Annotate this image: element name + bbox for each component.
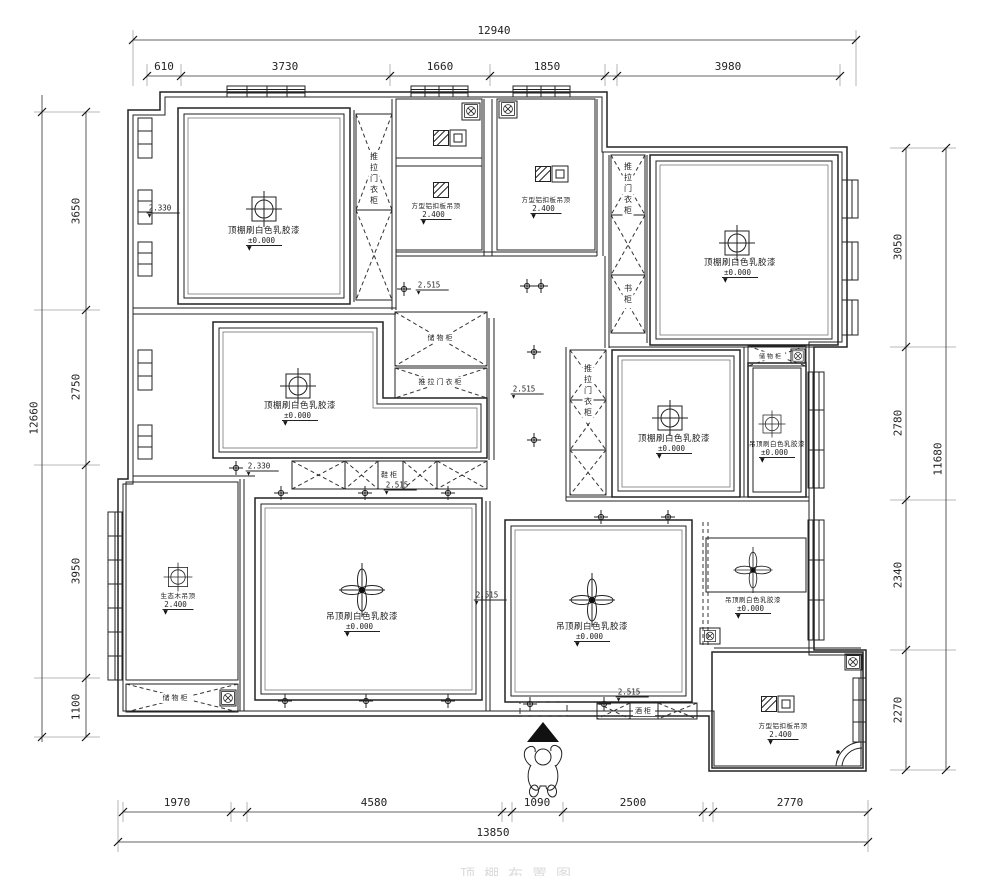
dim-top-seg-2: 1660: [427, 60, 454, 73]
dim-top-total: 12940: [477, 24, 510, 37]
room-hall-right: [700, 538, 806, 644]
wardrobe-label-mid: 推拉门衣柜: [583, 362, 594, 421]
bookcase-label: 书柜: [623, 282, 634, 308]
ceiling-plan-drawing: 12940 610 3730 1660 1850 3980 13850 1970…: [0, 0, 1000, 876]
dimension-lines: [34, 30, 956, 852]
dim-left-seg-0: 3650: [70, 198, 83, 225]
room-bedroom-mid: [612, 350, 740, 497]
window-left-1: [138, 118, 152, 158]
room-label-bedroom-tr: 顶棚刷白色乳胶漆 ±0.000▼: [704, 258, 776, 283]
window-right-1: [842, 180, 858, 218]
room-bedroom-tl: [178, 108, 350, 304]
level-triangle-icon: ▼: [247, 246, 252, 251]
dim-bottom-seg-4: 2770: [777, 796, 804, 809]
window-left-3: [138, 242, 152, 276]
elevation-marker-2: 2.515▼: [416, 281, 449, 296]
room-label-bath-1: 方型铝扣板吊顶 2.400▼: [412, 202, 461, 225]
room-label-bedroom-tl: 顶棚刷白色乳胶漆 ±0.000▼: [228, 226, 300, 251]
wardrobe-label-tr: 推拉门衣柜: [623, 160, 634, 219]
room-bath-2: [497, 99, 595, 250]
dim-left-seg-1: 2750: [70, 374, 83, 401]
dim-right-total: 11680: [932, 442, 945, 475]
window-right-6: [853, 678, 866, 742]
room-label-bath-3: 方型铝扣板吊顶 2.400▼: [759, 722, 808, 745]
storage-cabinet-label-2: 储物柜: [161, 693, 192, 703]
elevation-marker-7: 2.515▼: [616, 688, 649, 703]
window-left-4: [138, 350, 152, 390]
dim-top-seg-1: 3730: [272, 60, 299, 73]
dim-right-seg-3: 2270: [892, 697, 905, 724]
room-label-bath-2: 方型铝扣板吊顶 2.400▼: [522, 196, 571, 219]
window-left-5: [138, 425, 152, 459]
shoe-cabinet-label: 鞋柜: [379, 470, 401, 480]
wardrobe-label-tl: 推拉门衣柜: [369, 150, 380, 209]
elevation-marker-1: 2.330▼: [147, 204, 180, 219]
room-bath-3: [712, 652, 863, 768]
dim-left-seg-3: 1100: [70, 694, 83, 721]
dim-right-seg-0: 3050: [892, 234, 905, 261]
dim-right-seg-1: 2780: [892, 410, 905, 437]
plan-linework: [0, 0, 1000, 876]
entry-arrow-icon: [527, 722, 559, 742]
room-label-narrow-right: 吊顶刷白色乳胶漆 ±0.000▼: [749, 440, 805, 463]
dim-bottom-seg-0: 1970: [164, 796, 191, 809]
storage-cabinet-label-1: 储物柜: [426, 333, 457, 343]
dim-top-seg-0: 610: [154, 60, 174, 73]
dim-bottom-seg-3: 2500: [620, 796, 647, 809]
room-narrow-right: [748, 363, 806, 497]
room-label-study: 顶棚刷白色乳胶漆 ±0.000▼: [264, 401, 336, 426]
room-label-balcony: 生态木吊顶 2.400▼: [161, 592, 196, 615]
dim-top-seg-3: 1850: [534, 60, 561, 73]
window-right-5: [808, 520, 824, 640]
room-bedroom-tr: [650, 155, 838, 345]
window-balcony: [108, 512, 122, 680]
room-living: [255, 486, 482, 708]
dim-left-total: 12660: [28, 401, 41, 434]
dim-bottom-seg-2: 1090: [524, 796, 551, 809]
dim-left-seg-2: 3950: [70, 558, 83, 585]
window-right-3: [842, 300, 858, 335]
wardrobe-label-study: 推拉门衣柜: [417, 377, 466, 387]
elevation-marker-3: 2.515▼: [511, 385, 544, 400]
room-label-dining: 吊顶刷白色乳胶漆 ±0.000▼: [556, 622, 628, 647]
room-dining: [505, 510, 692, 711]
dim-top-seg-4: 3980: [715, 60, 742, 73]
elevation-marker-4: 2.330▼: [246, 462, 279, 477]
dim-bottom-seg-1: 4580: [361, 796, 388, 809]
elevation-marker-5: 2.515▼: [384, 481, 417, 496]
elevation-marker-6: 2.515▼: [474, 591, 507, 606]
room-balcony: [126, 482, 238, 680]
drawing-title-watermark: 顶棚布置图: [460, 864, 580, 876]
window-right-4: [808, 372, 824, 488]
dim-bottom-total: 13850: [476, 826, 509, 839]
room-label-living: 吊顶刷白色乳胶漆 ±0.000▼: [326, 612, 398, 637]
room-label-hall-right: 吊顶刷白色乳胶漆 ±0.000▼: [725, 596, 781, 619]
storage-cabinet-label-3: 储物柜: [757, 352, 785, 361]
entry-person-icon: [524, 745, 561, 797]
wine-cabinet-label: 酒柜: [633, 706, 655, 716]
room-bath-1: [396, 99, 482, 250]
dim-right-seg-2: 2340: [892, 562, 905, 589]
room-label-bedroom-mid: 顶棚刷白色乳胶漆 ±0.000▼: [638, 434, 710, 459]
window-right-2: [842, 242, 858, 280]
